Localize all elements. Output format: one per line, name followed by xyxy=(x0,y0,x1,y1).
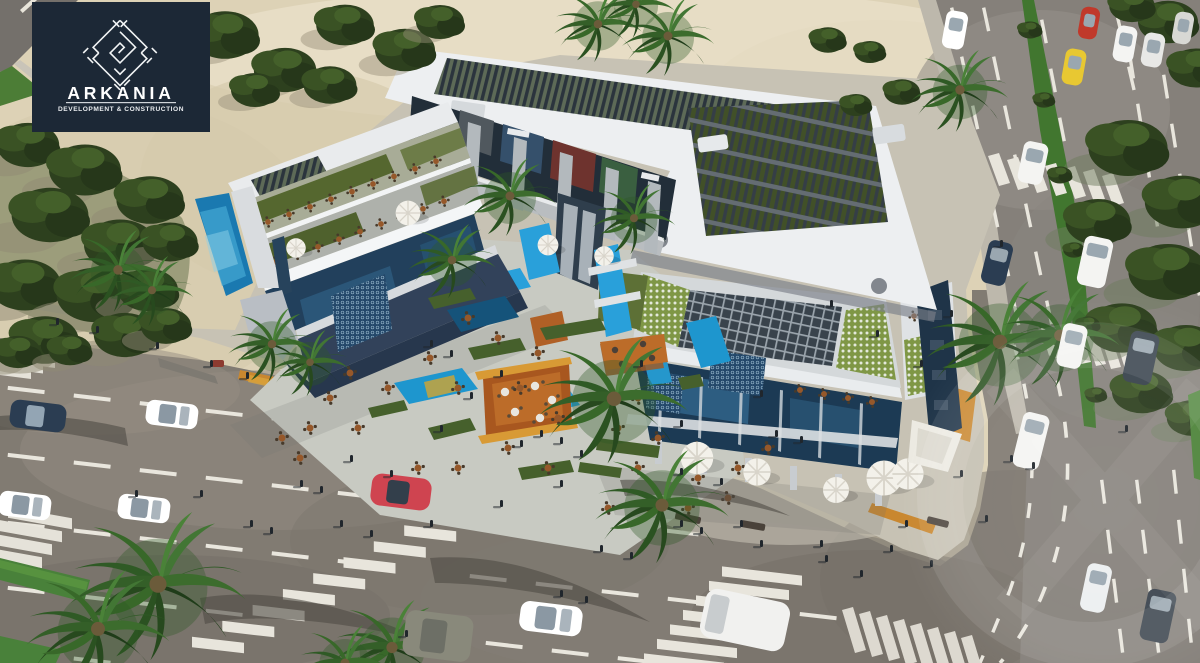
svg-text:ARKANIA: ARKANIA xyxy=(67,83,174,103)
svg-text:DEVELOPMENT & CONSTRUCTION: DEVELOPMENT & CONSTRUCTION xyxy=(58,106,184,113)
